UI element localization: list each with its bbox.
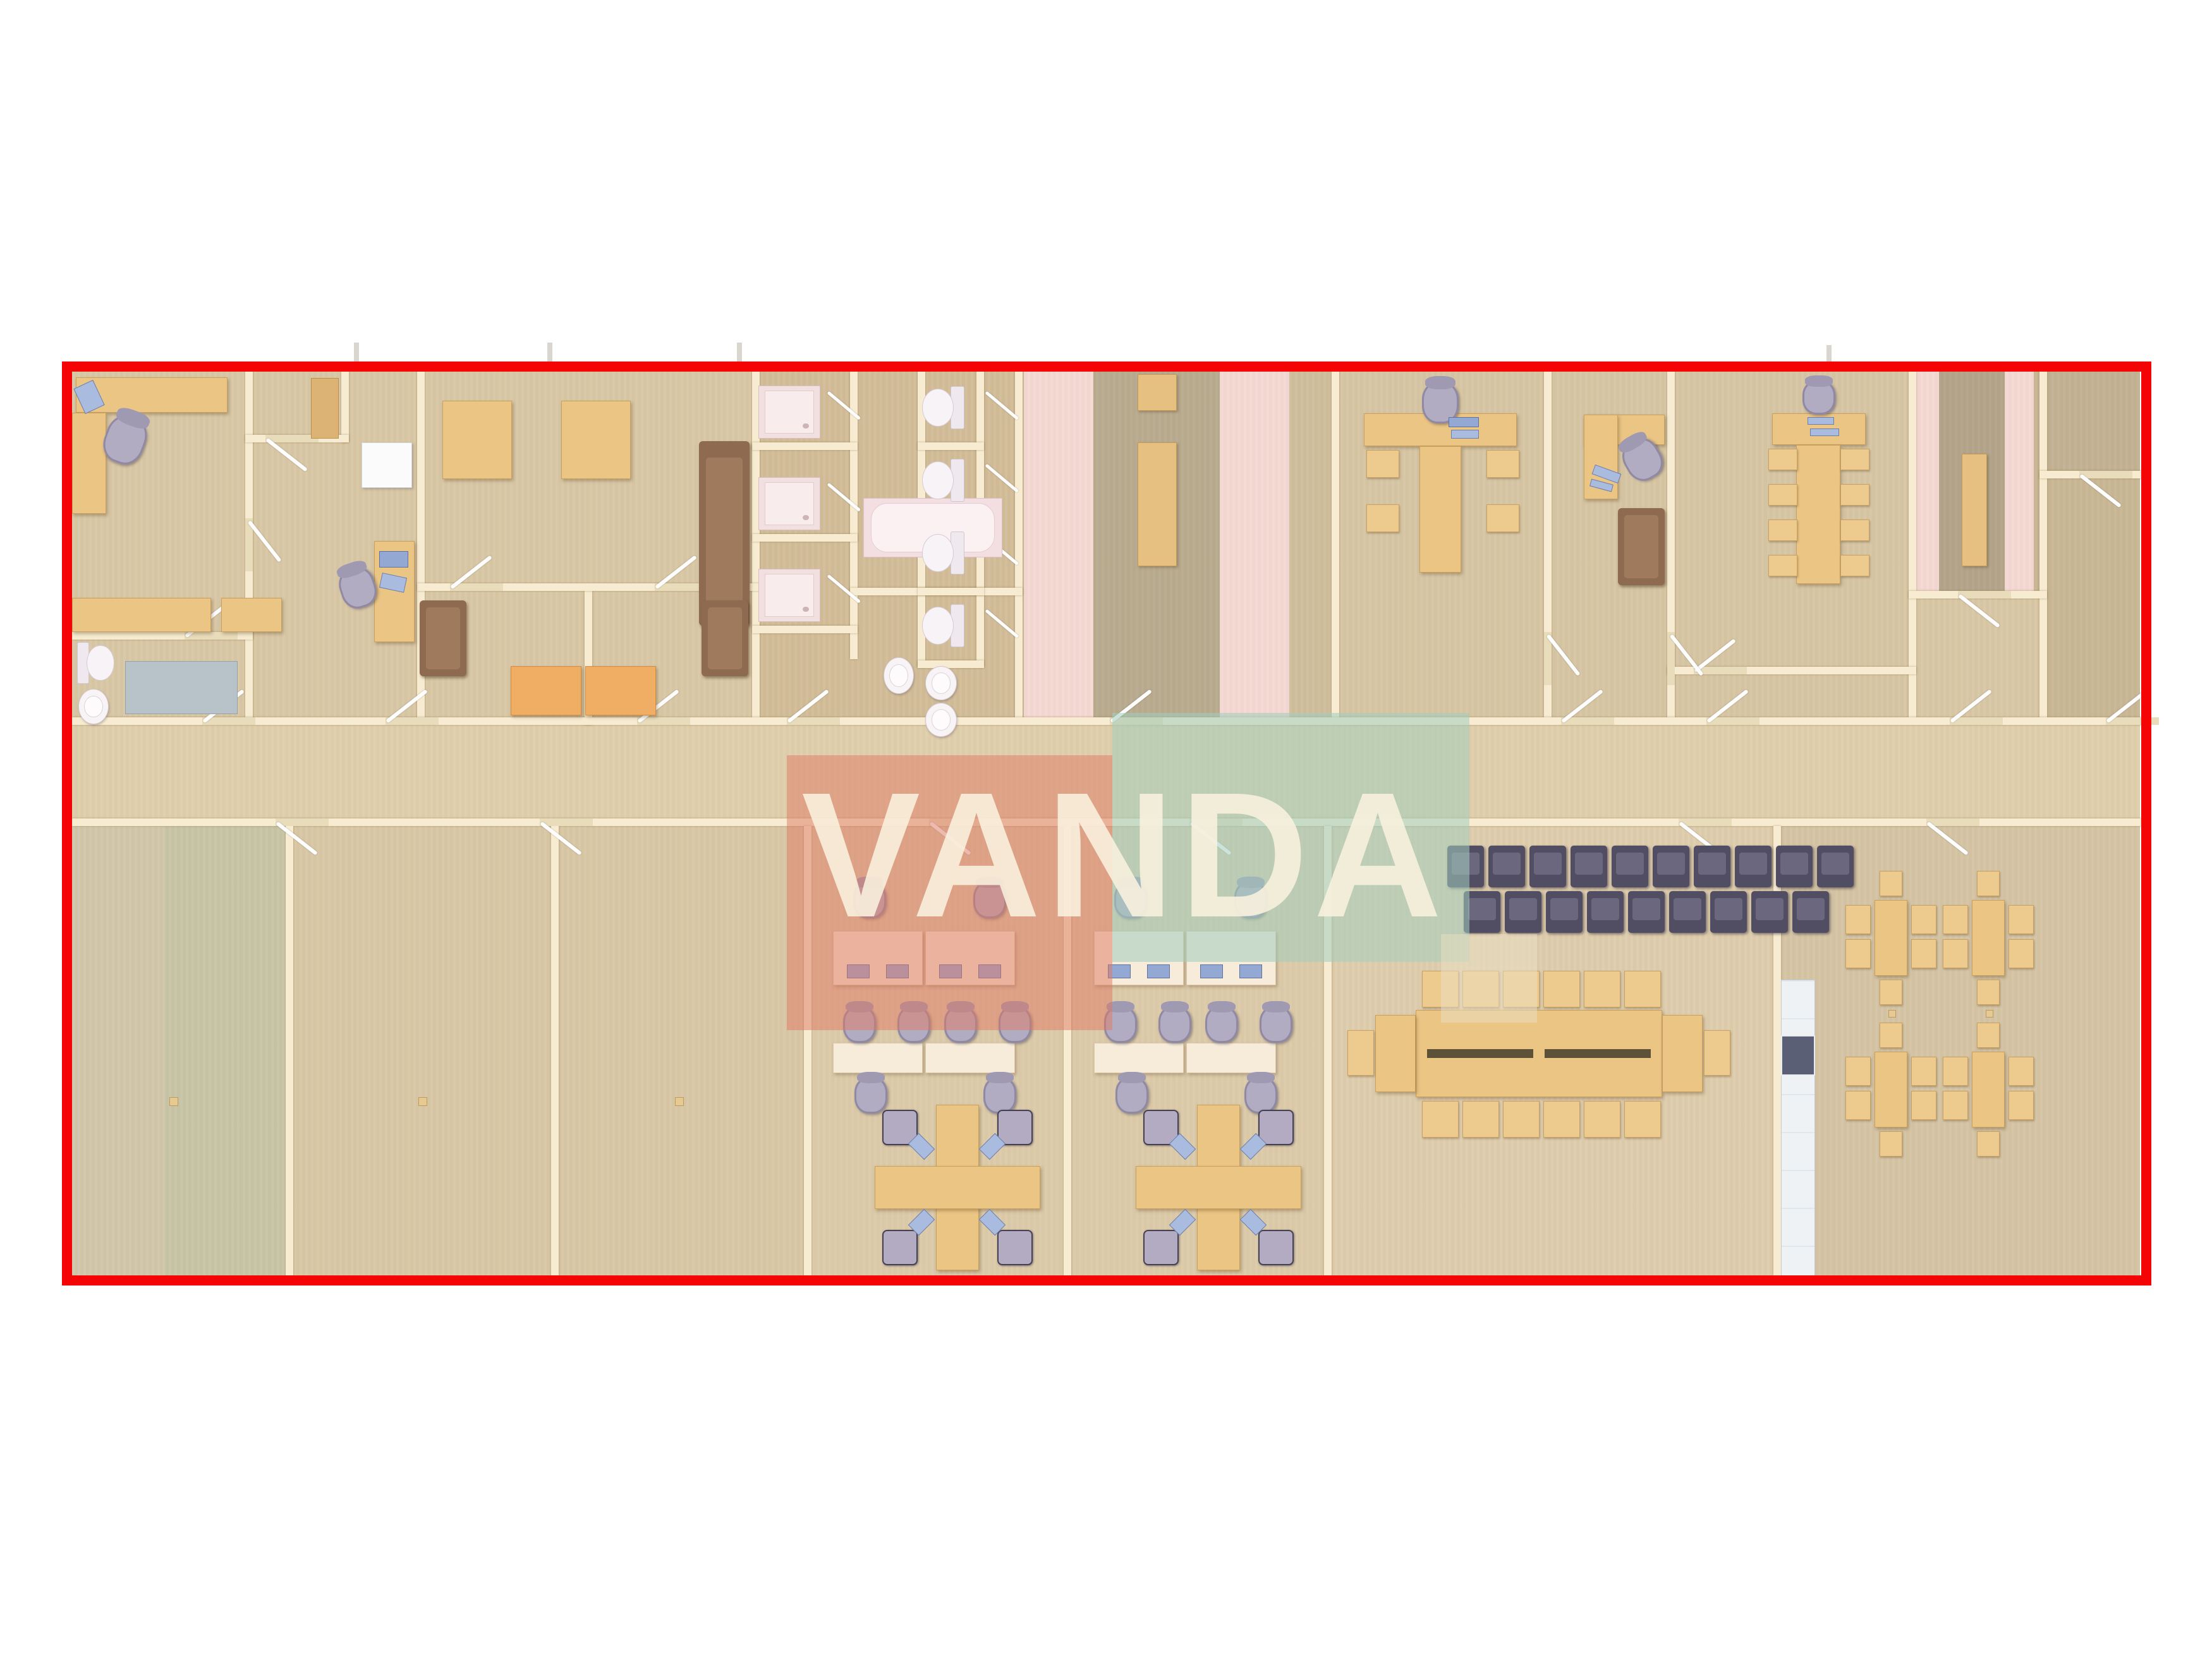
plan-red-border <box>62 362 2151 1285</box>
floor-plan-page: VANDA <box>0 0 2212 1659</box>
exterior-wall-tick <box>547 343 552 362</box>
exterior-wall-tick <box>1826 345 1832 362</box>
exterior-wall-tick <box>354 343 359 362</box>
exterior-wall-tick <box>737 343 742 362</box>
